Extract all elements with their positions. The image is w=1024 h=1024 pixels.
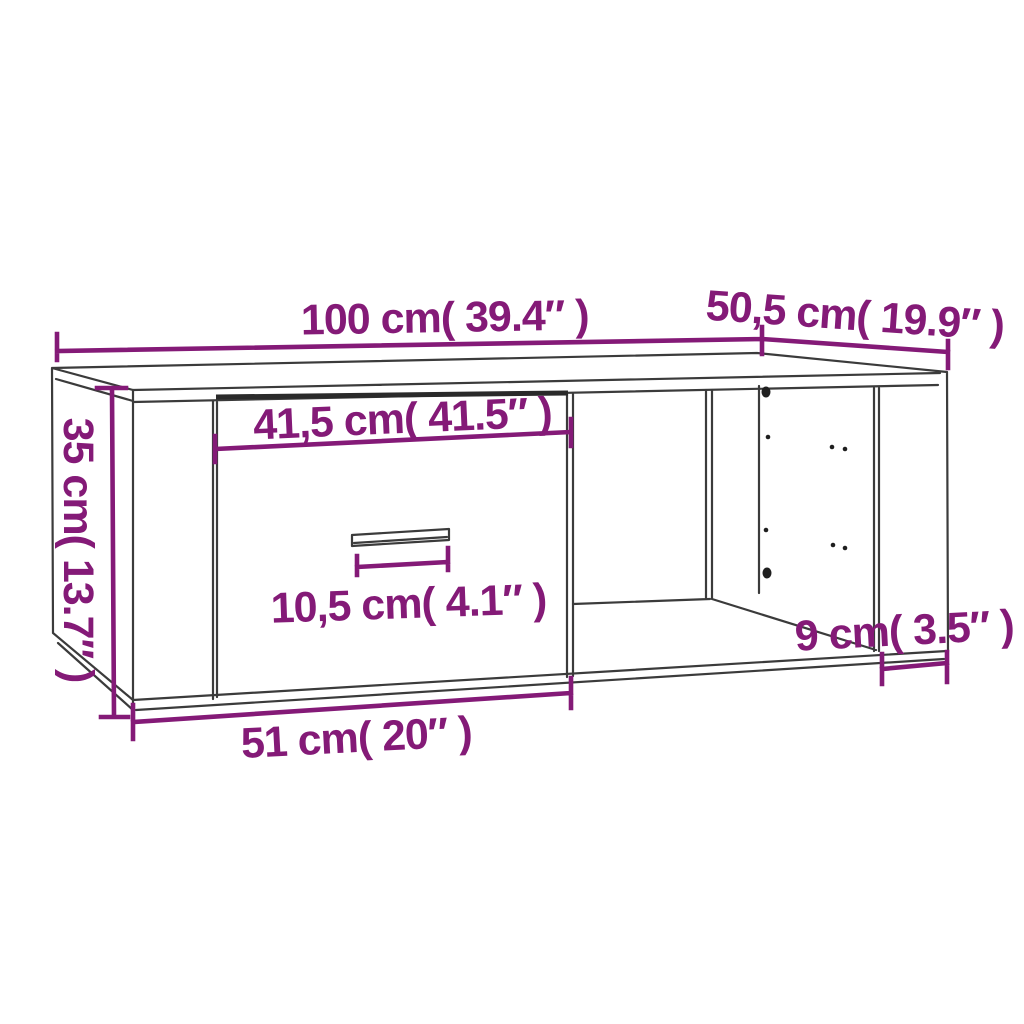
dimension-diagram: 100 cm( 39.4″ ) 50,5 cm( 19.9″ ) 35 cm( … [0, 0, 1024, 1024]
dim-left-height-label: 35 cm( 13.7″ ) [54, 418, 102, 683]
shelf-pin-hole [764, 528, 769, 533]
shelf-pin-hole [843, 447, 848, 452]
shelf-pin-hole [831, 543, 836, 548]
shelf-pin-hole [830, 445, 835, 450]
dim-bottom-width-label: 51 cm( 20″ ) [240, 708, 473, 768]
shelf-pin-hole [843, 546, 848, 551]
screw-hole [762, 387, 771, 398]
dim-handle-width-line [357, 548, 448, 575]
dim-top-width-label: 100 cm( 39.4″ ) [301, 291, 589, 344]
dim-handle-width-label: 10,5 cm( 4.1″ ) [270, 575, 547, 633]
back-panel-holes [762, 387, 848, 579]
shelf-pin-hole [766, 435, 771, 440]
dim-right-inset-line [882, 652, 947, 684]
screw-hole [763, 568, 772, 579]
dimension-diagram-page: 100 cm( 39.4″ ) 50,5 cm( 19.9″ ) 35 cm( … [0, 0, 1024, 1024]
dim-right-inset-label: 9 cm( 3.5″ ) [794, 601, 1015, 660]
